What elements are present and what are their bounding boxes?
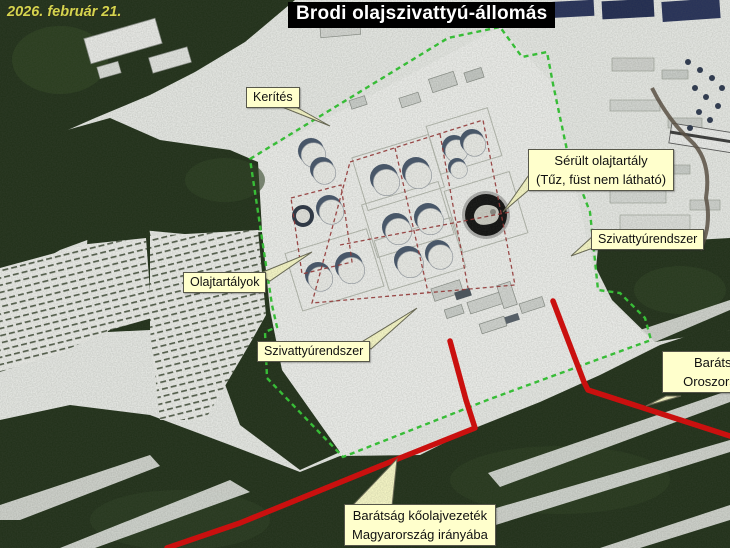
pipeline-hungary-callout: Barátság kőolajvezeték Magyarország irán… [344, 504, 496, 546]
pipeline-russia-callout-line1: Barátság [670, 353, 730, 372]
fence-callout: Kerítés [246, 87, 300, 108]
date-label: 2026. február 21. [7, 4, 121, 20]
pipeline-hungary-callout-line1: Barátság kőolajvezeték [352, 506, 488, 525]
pump-system-upper-callout: Szivattyúrendszer [591, 229, 704, 250]
page-title: Brodi olajszivattyú-állomás [288, 2, 555, 28]
annotated-satellite-image: 2026. február 21. Brodi olajszivattyú-ál… [0, 0, 730, 548]
damaged-tank-callout-line2: (Tűz, füst nem látható) [536, 170, 666, 189]
pipeline-russia-callout: Barátság Oroszország [662, 351, 730, 393]
pipeline-russia-callout-line2: Oroszország [670, 372, 730, 391]
pipeline-hungary-callout-line2: Magyarország irányába [352, 525, 488, 544]
damaged-tank-callout: Sérült olajtartály (Tűz, füst nem láthat… [528, 149, 674, 191]
satellite-scene [0, 0, 730, 548]
oil-tanks-callout: Olajtartályok [183, 272, 266, 293]
damaged-tank-callout-line1: Sérült olajtartály [536, 151, 666, 170]
image-grain [0, 0, 730, 548]
pump-system-lower-callout: Szivattyúrendszer [257, 341, 370, 362]
